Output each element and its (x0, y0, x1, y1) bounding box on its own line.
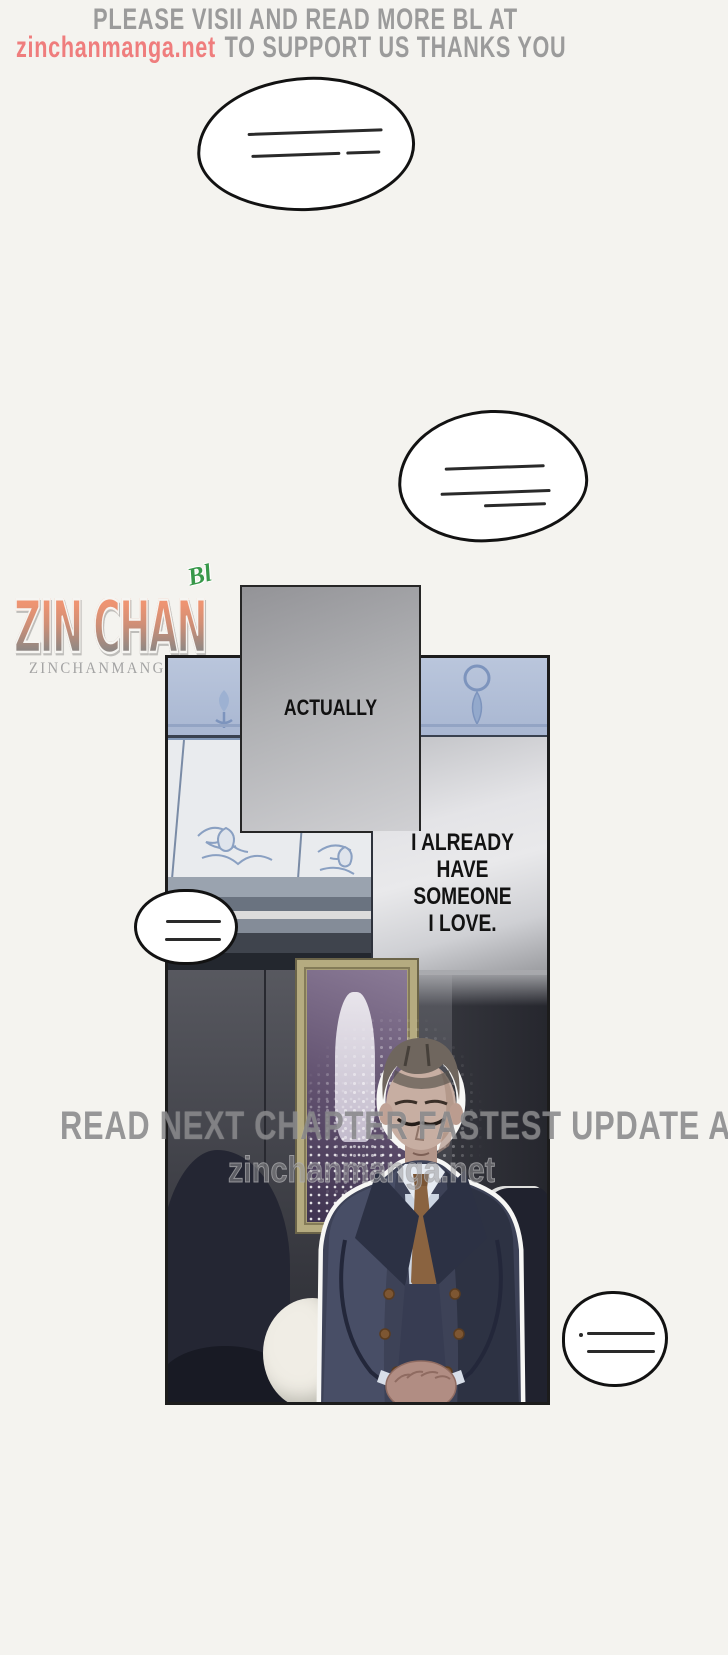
caption-box-actually: ACTUALLY (240, 585, 421, 831)
watermark-site: zinchanmanga.net (228, 1150, 495, 1190)
caption-actually-text: ACTUALLY (260, 695, 402, 721)
redacted-line (165, 938, 221, 941)
redacted-line (248, 128, 383, 136)
speech-bubble-middle (396, 407, 590, 546)
speech-bubble-bottom (562, 1291, 668, 1387)
confession-line: I ALREADY (391, 829, 534, 856)
man-hands (386, 1361, 456, 1405)
redacted-line (251, 152, 340, 158)
site-logo: ZIN CHAN (14, 598, 206, 656)
header-line2-rest: TO SUPPORT US THANKS YOU (225, 31, 567, 64)
redacted-line (445, 464, 545, 470)
speech-bubble-top (195, 73, 418, 215)
redacted-line (587, 1332, 655, 1335)
watermark-read-next: READ NEXT CHAPTER FASTEST UPDATE AT (60, 1104, 728, 1148)
confession-line: HAVE (391, 856, 534, 883)
confession-line: SOMEONE (391, 883, 534, 910)
redacted-line (166, 920, 221, 923)
speech-bubble-left (134, 889, 238, 965)
manga-page: PLEASE VISII AND READ MORE BL AT zinchan… (0, 0, 728, 1655)
caption-box-bottom-edge (240, 831, 372, 833)
redacted-line (484, 502, 546, 507)
redacted-line (346, 150, 380, 154)
redacted-dot (579, 1333, 583, 1337)
redacted-line (587, 1350, 655, 1353)
frieze-ornament-icon (450, 660, 504, 734)
man-illustration (293, 988, 550, 1405)
header-line2: zinchanmanga.netTO SUPPORT US THANKS YOU (16, 33, 566, 63)
header-site-link: zinchanmanga.net (16, 31, 216, 64)
redacted-line (441, 489, 551, 496)
confession-line: I LOVE. (391, 910, 534, 937)
caption-confession-text: I ALREADY HAVE SOMEONE I LOVE. (391, 829, 534, 937)
